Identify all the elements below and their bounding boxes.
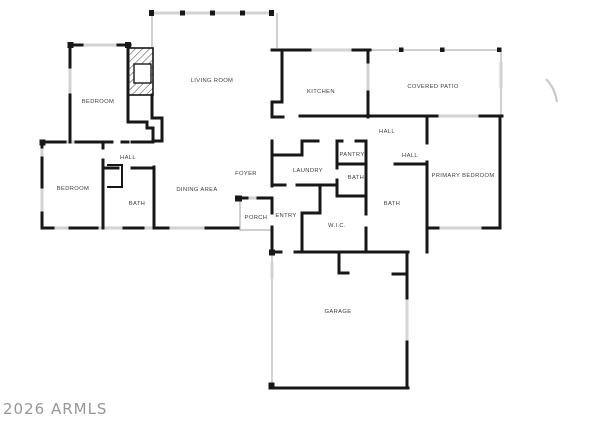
room-label: LIVING ROOM bbox=[191, 78, 234, 84]
room-label: BEDROOM bbox=[82, 99, 114, 105]
room-label: DINING AREA bbox=[176, 187, 217, 193]
patio-outline bbox=[152, 13, 501, 388]
room-label: HALL bbox=[402, 153, 418, 159]
pen-mark bbox=[546, 79, 557, 102]
room-label: BATH bbox=[348, 175, 364, 181]
room-label: GARAGE bbox=[325, 309, 352, 315]
room-label: LAUNDRY bbox=[293, 168, 323, 174]
room-label: HALL bbox=[120, 155, 136, 161]
watermark: 2026 ARMLS bbox=[3, 400, 107, 418]
room-label: PRIMARY BEDROOM bbox=[431, 173, 494, 179]
room-label: COVERED PATIO bbox=[407, 84, 459, 90]
floor-plan-drawing: BEDROOM LIVING ROOM KITCHEN COVERED PATI… bbox=[0, 0, 600, 432]
room-label: BATH bbox=[129, 201, 145, 207]
room-label: FOYER bbox=[235, 171, 257, 177]
fireplace bbox=[128, 48, 153, 95]
room-label: HALL bbox=[379, 129, 395, 135]
room-labels: BEDROOM LIVING ROOM KITCHEN COVERED PATI… bbox=[57, 78, 495, 315]
room-label: W.I.C. bbox=[328, 223, 346, 229]
room-label: PORCH bbox=[245, 215, 268, 221]
room-label: ENTRY bbox=[275, 213, 296, 219]
room-label: KITCHEN bbox=[307, 89, 335, 95]
room-label: PANTRY bbox=[339, 152, 364, 158]
floor-plan-page: BEDROOM LIVING ROOM KITCHEN COVERED PATI… bbox=[0, 0, 600, 432]
room-label: BATH bbox=[384, 201, 400, 207]
room-label: BEDROOM bbox=[57, 186, 89, 192]
